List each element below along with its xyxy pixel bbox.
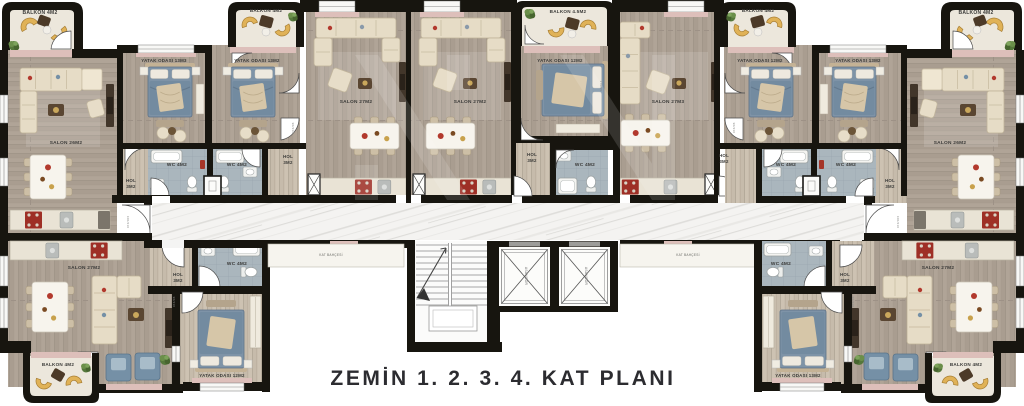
svg-text:WC 4M2: WC 4M2 — [575, 162, 595, 168]
svg-text:HOL: HOL — [719, 153, 729, 158]
svg-text:SALON 26M2: SALON 26M2 — [50, 140, 83, 146]
svg-text:WC 4M2: WC 4M2 — [776, 162, 796, 168]
svg-text:YATAK ODASI 12M2: YATAK ODASI 12M2 — [537, 58, 583, 63]
svg-text:HOL: HOL — [173, 272, 183, 277]
svg-text:KAT BAHÇESİ: KAT BAHÇESİ — [676, 252, 700, 257]
svg-text:BALKON 4.5M2: BALKON 4.5M2 — [550, 9, 587, 14]
svg-text:SALON 26M2: SALON 26M2 — [934, 140, 967, 146]
svg-text:HOL: HOL — [885, 178, 895, 183]
svg-text:3M2: 3M2 — [126, 184, 136, 189]
svg-text:SALON 27M2: SALON 27M2 — [68, 265, 101, 271]
svg-text:WC 4M2: WC 4M2 — [771, 261, 791, 267]
svg-text:3M2: 3M2 — [527, 158, 537, 163]
svg-text:ASANSÖR: ASANSÖR — [584, 267, 588, 286]
svg-text:HOL: HOL — [126, 178, 136, 183]
svg-text:90/210: 90/210 — [732, 123, 736, 134]
svg-text:BALKON 4M2: BALKON 4M2 — [958, 10, 993, 16]
svg-text:YATAK ODASI 13M2: YATAK ODASI 13M2 — [234, 58, 280, 63]
svg-text:170/05: 170/05 — [599, 81, 603, 92]
svg-text:YATAK ODASI 13M2: YATAK ODASI 13M2 — [835, 58, 881, 63]
svg-text:3M2: 3M2 — [885, 184, 895, 189]
svg-text:HOL: HOL — [527, 152, 537, 157]
svg-text:100/210: 100/210 — [126, 216, 130, 229]
svg-text:WC 4M2: WC 4M2 — [227, 261, 247, 267]
svg-text:YATAK ODASI 12M2: YATAK ODASI 12M2 — [199, 373, 245, 378]
svg-text:90/210: 90/210 — [291, 123, 295, 134]
svg-text:BALKON 4M2: BALKON 4M2 — [42, 362, 75, 367]
svg-text:3M2: 3M2 — [840, 278, 850, 283]
svg-text:SALON 27M2: SALON 27M2 — [922, 265, 955, 271]
svg-text:ZEMİN 1. 2. 3. 4. KAT PLANI: ZEMİN 1. 2. 3. 4. KAT PLANI — [330, 367, 675, 390]
svg-text:HOL: HOL — [840, 272, 850, 277]
svg-text:90/210: 90/210 — [172, 297, 176, 308]
svg-text:90/210: 90/210 — [851, 297, 855, 308]
svg-text:WC 4M2: WC 4M2 — [227, 162, 247, 168]
svg-text:BALKON 4M2: BALKON 4M2 — [950, 362, 983, 367]
svg-text:3M2: 3M2 — [283, 160, 293, 165]
svg-text:3M2: 3M2 — [173, 278, 183, 283]
svg-text:BALKON 4M2: BALKON 4M2 — [250, 8, 283, 13]
svg-text:SALON 27M2: SALON 27M2 — [454, 99, 487, 105]
svg-text:YATAK ODASI 13M3: YATAK ODASI 13M3 — [141, 58, 187, 63]
svg-text:YATAK ODASI 12M2: YATAK ODASI 12M2 — [737, 58, 783, 63]
svg-text:WC 4M2: WC 4M2 — [167, 162, 187, 168]
svg-text:ASANSÖR: ASANSÖR — [524, 267, 528, 286]
svg-text:YATAK ODASI 13M2: YATAK ODASI 13M2 — [775, 373, 821, 378]
svg-text:SALON 27M2: SALON 27M2 — [340, 99, 373, 105]
svg-text:WC 4M2: WC 4M2 — [836, 162, 856, 168]
svg-text:100/210: 100/210 — [896, 216, 900, 229]
svg-text:3M2: 3M2 — [719, 159, 729, 164]
svg-text:BALKON 4M2: BALKON 4M2 — [742, 8, 775, 13]
svg-text:HOL: HOL — [283, 154, 293, 159]
svg-text:BALKON 4M2: BALKON 4M2 — [22, 10, 57, 16]
svg-text:SALON 27M3: SALON 27M3 — [652, 99, 685, 105]
svg-text:KAT BAHÇESİ: KAT BAHÇESİ — [319, 252, 343, 257]
